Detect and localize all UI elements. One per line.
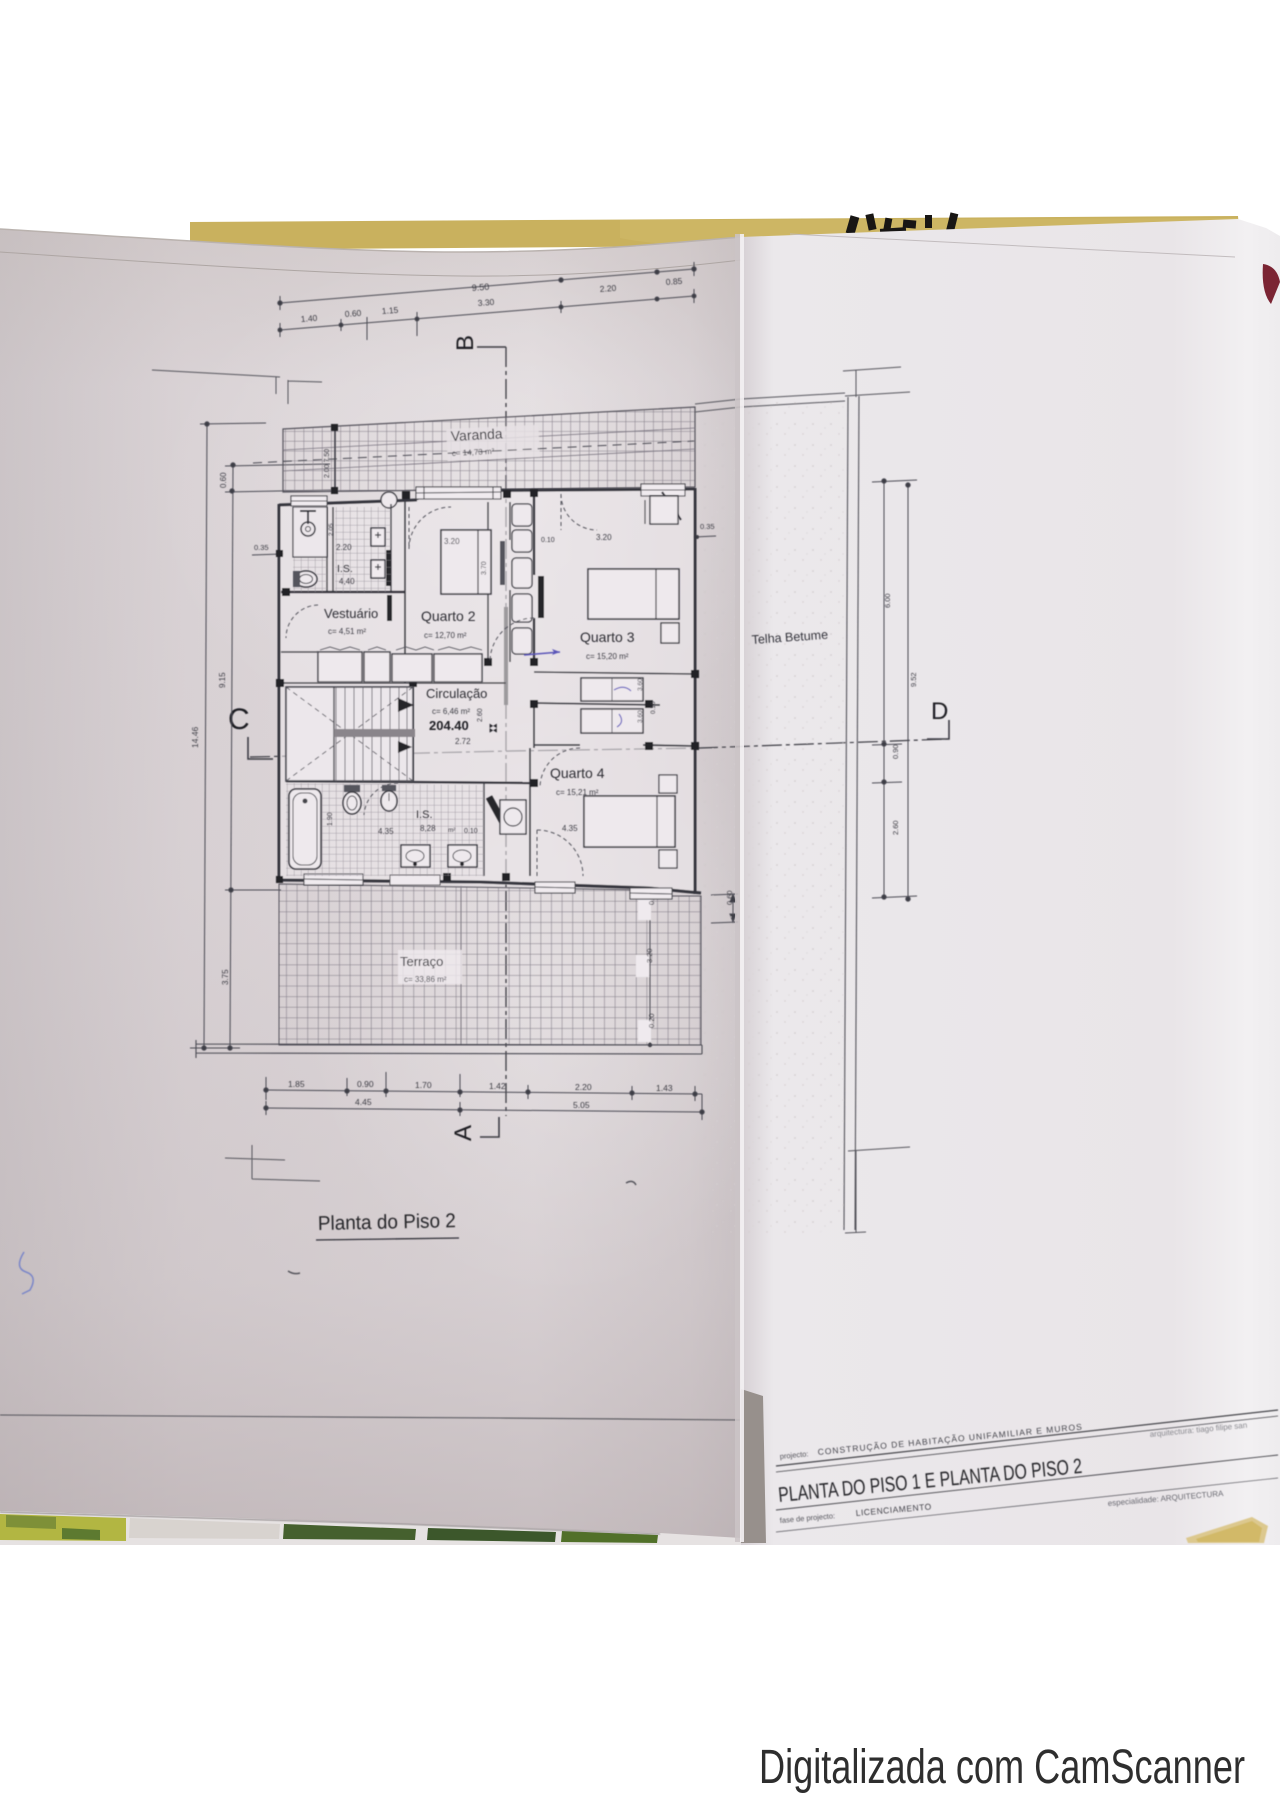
svg-text:c= 6,46 m²: c= 6,46 m² [432, 707, 470, 716]
svg-text:0.90: 0.90 [357, 1079, 374, 1089]
svg-text:4.45: 4.45 [355, 1097, 372, 1107]
svg-text:1.40: 1.40 [300, 313, 318, 324]
svg-text:8,28: 8,28 [420, 824, 436, 833]
svg-text:c= 12,70 m²: c= 12,70 m² [424, 631, 467, 640]
svg-text:3.30: 3.30 [477, 297, 495, 308]
svg-text:D: D [931, 698, 948, 725]
svg-text:Quarto 4: Quarto 4 [550, 765, 605, 781]
svg-text:0.10: 0.10 [650, 701, 657, 714]
svg-text:c= 15,20 m²: c= 15,20 m² [586, 652, 629, 661]
svg-text:0.85: 0.85 [665, 276, 683, 287]
svg-text:204.40: 204.40 [429, 718, 469, 733]
svg-text:3.75: 3.75 [221, 969, 230, 985]
svg-text:9.15: 9.15 [218, 672, 227, 688]
svg-text:4.35: 4.35 [562, 824, 578, 833]
svg-text:9.52: 9.52 [909, 672, 918, 687]
svg-text:3.20: 3.20 [444, 537, 460, 546]
svg-text:Varanda: Varanda [450, 425, 503, 444]
svg-text:2.00 7.50: 2.00 7.50 [324, 449, 331, 478]
svg-text:3.60: 3.60 [637, 710, 644, 723]
svg-text:4,40: 4,40 [339, 577, 355, 586]
svg-text:m²: m² [448, 827, 456, 834]
svg-text:0.10: 0.10 [541, 537, 555, 544]
svg-text:0.90: 0.90 [891, 744, 900, 759]
svg-text:c= 4,51 m²: c= 4,51 m² [328, 627, 366, 636]
svg-text:Vestuário: Vestuário [324, 606, 378, 621]
svg-text:9.50: 9.50 [471, 282, 489, 293]
svg-text:2.20: 2.20 [575, 1082, 592, 1092]
svg-text:3.20: 3.20 [645, 948, 654, 963]
svg-text:I.S.: I.S. [337, 563, 353, 575]
svg-text:3.70: 3.70 [481, 561, 488, 575]
svg-text:A: A [450, 1125, 477, 1141]
svg-text:0.35: 0.35 [254, 543, 269, 552]
svg-text:c= 33,86 m²: c= 33,86 m² [404, 975, 447, 984]
svg-text:Digitalizada com CamScanner: Digitalizada com CamScanner [759, 1741, 1245, 1794]
svg-text:1.43: 1.43 [656, 1083, 673, 1093]
svg-text:2.20: 2.20 [599, 283, 617, 294]
svg-text:2.72: 2.72 [455, 737, 471, 746]
svg-text:1.85: 1.85 [288, 1079, 305, 1089]
svg-text:Planta do Piso 2: Planta do Piso 2 [318, 1210, 456, 1235]
svg-text:3.60: 3.60 [637, 678, 644, 691]
svg-text:Quarto 2: Quarto 2 [421, 608, 476, 624]
svg-text:1.15: 1.15 [381, 305, 399, 316]
svg-text:3.20: 3.20 [596, 533, 612, 542]
svg-text:Circulação: Circulação [426, 686, 487, 701]
svg-text:14.46: 14.46 [190, 726, 200, 748]
svg-text:5.05: 5.05 [573, 1100, 590, 1110]
svg-text:1.42: 1.42 [489, 1081, 506, 1091]
svg-text:0.20: 0.20 [647, 1013, 656, 1028]
svg-text:2.20: 2.20 [336, 543, 352, 552]
svg-text:4.35: 4.35 [378, 827, 394, 836]
svg-text:I.S.: I.S. [416, 809, 433, 821]
svg-text:0.60: 0.60 [219, 472, 228, 488]
svg-text:2.60: 2.60 [477, 708, 484, 722]
svg-text:Terraço: Terraço [400, 954, 443, 969]
svg-text:1.70: 1.70 [415, 1080, 432, 1090]
svg-text:B: B [452, 335, 479, 351]
svg-text:Quarto 3: Quarto 3 [580, 629, 635, 645]
svg-text:0.10: 0.10 [464, 828, 478, 835]
svg-text:0.60: 0.60 [344, 308, 362, 319]
svg-text:6.00: 6.00 [883, 593, 892, 608]
svg-text:2.60: 2.60 [891, 820, 900, 835]
svg-text:2.05: 2.05 [328, 523, 335, 536]
svg-text:1.90: 1.90 [327, 812, 334, 826]
